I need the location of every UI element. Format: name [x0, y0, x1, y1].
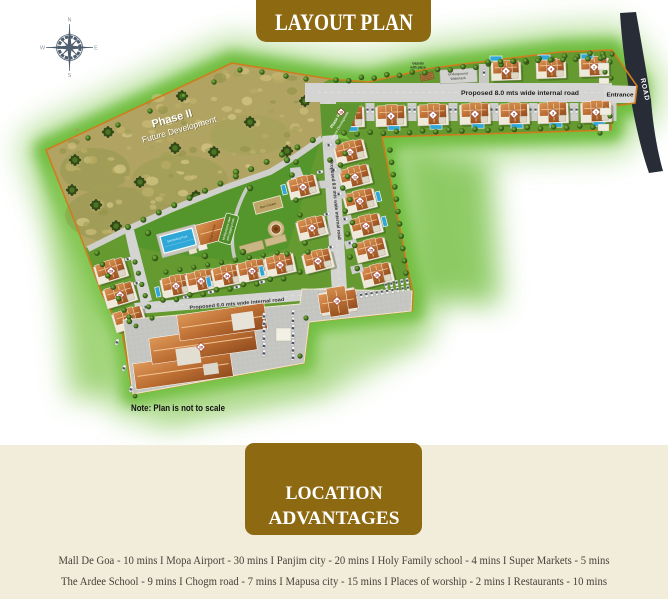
svg-text:The Ardee School - 9 mins I Ch: The Ardee School - 9 mins I Chogm road -…	[61, 574, 607, 588]
svg-text:LOCATION: LOCATION	[286, 483, 383, 504]
svg-text:8: 8	[390, 114, 392, 118]
svg-text:5: 5	[513, 112, 515, 116]
svg-text:6: 6	[474, 112, 476, 116]
svg-text:10: 10	[339, 110, 343, 114]
svg-text:35: 35	[250, 269, 254, 273]
svg-text:12: 12	[353, 175, 357, 179]
svg-text:3: 3	[552, 111, 554, 115]
svg-text:36: 36	[278, 263, 282, 267]
svg-text:2: 2	[593, 65, 595, 69]
svg-text:LAYOUT PLAN: LAYOUT PLAN	[275, 10, 413, 35]
svg-text:Entrance: Entrance	[607, 93, 634, 99]
svg-text:7: 7	[432, 113, 434, 117]
svg-text:29: 29	[109, 269, 113, 273]
svg-text:13: 13	[358, 199, 362, 203]
svg-text:with plaza: with plaza	[409, 65, 425, 69]
svg-text:W: W	[40, 46, 46, 52]
svg-text:15: 15	[369, 248, 373, 252]
svg-text:33: 33	[199, 279, 203, 283]
svg-text:40: 40	[316, 259, 320, 263]
svg-text:E: E	[94, 46, 98, 52]
svg-text:11: 11	[348, 150, 352, 154]
svg-text:N: N	[68, 18, 72, 24]
svg-text:16: 16	[375, 273, 379, 277]
svg-text:38: 38	[310, 226, 314, 230]
svg-text:Proposed 8.0 mts wide interna: Proposed 8.0 mts wide internal road	[461, 90, 579, 97]
svg-text:1: 1	[595, 110, 597, 114]
svg-text:Watertank: Watertank	[450, 76, 466, 81]
svg-text:6: 6	[505, 69, 507, 73]
svg-text:Note: Plan is not to scale: Note: Plan is not to scale	[131, 403, 225, 413]
svg-text:32: 32	[174, 284, 178, 288]
svg-text:S: S	[68, 73, 72, 79]
svg-text:30: 30	[301, 185, 305, 189]
svg-text:Mall De Goa - 10 mins I Mopa A: Mall De Goa - 10 mins I Mopa Airport - 3…	[59, 553, 610, 567]
svg-text:18: 18	[335, 299, 339, 303]
svg-text:ADVANTAGES: ADVANTAGES	[269, 508, 400, 529]
svg-text:20: 20	[199, 345, 203, 349]
